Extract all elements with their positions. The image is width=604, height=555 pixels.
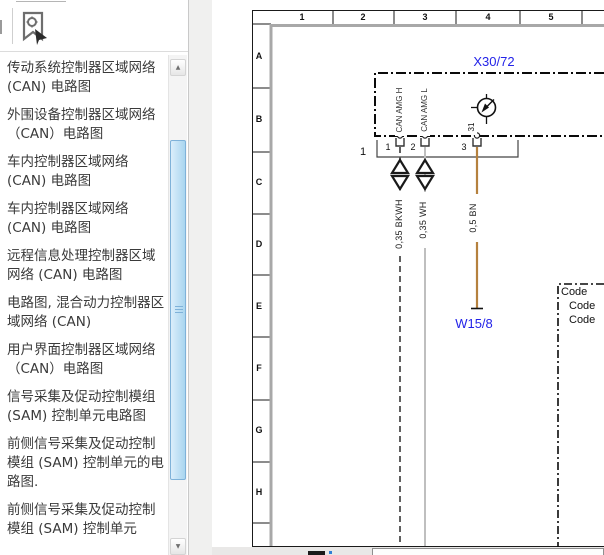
grid-column-label: 1	[292, 12, 312, 22]
ground-point-label: W15/8	[446, 316, 502, 331]
wire-gauge-label-bn: 0,5 BN	[468, 195, 478, 241]
scrollbar-grip-icon	[175, 306, 183, 313]
sidebar-scrollbar[interactable]: ▲ ▼	[168, 55, 187, 555]
pin-number: 1	[383, 142, 393, 152]
sidebar-item-telematics-can[interactable]: 远程信息处理控制器区域网络 (CAN) 电路图	[7, 247, 165, 285]
grid-row-label: G	[251, 425, 267, 435]
scroll-up-button[interactable]: ▲	[170, 59, 186, 76]
grid-column-label: 5	[541, 12, 561, 22]
bookmark-search-button[interactable]	[19, 11, 51, 49]
panel-gutter	[189, 0, 212, 555]
toolbar-edge-fragment	[0, 20, 2, 34]
sidebar-item-sam-unit[interactable]: 信号采集及促动控制模组 (SAM) 控制单元电路图	[7, 388, 165, 426]
taskbar-app-icon[interactable]	[308, 551, 325, 555]
sidebar-item-ui-can[interactable]: 用户界面控制器区域网络（CAN）电路图	[7, 341, 165, 379]
wire-gauge-label-wh: 0,35 WH	[418, 195, 428, 245]
grid-row-label: H	[251, 487, 267, 497]
scroll-down-button[interactable]: ▼	[170, 538, 186, 555]
scrollbar-thumb[interactable]	[170, 140, 186, 480]
plug-number-label: 1	[360, 146, 366, 158]
signal-label-can-amg-h: CAN AMG H	[395, 84, 405, 136]
schematic-drawing	[212, 0, 604, 555]
grid-column-label: 4	[478, 12, 498, 22]
code-box-line: Code	[569, 300, 595, 312]
sidebar-item-interior-can-2[interactable]: 车内控制器区域网络 (CAN) 电路图	[7, 200, 165, 238]
sidebar-item-powertrain-can[interactable]: 传动系统控制器区域网络 (CAN) 电路图	[7, 59, 165, 97]
grid-column-label: 2	[353, 12, 373, 22]
diagram-viewport[interactable]: 1 2 3 4 5 A B C D E F G H X30/72 CAN AMG…	[212, 0, 604, 555]
pin3-circuit-label: 31	[467, 119, 477, 135]
sidebar-item-front-sam-1[interactable]: 前侧信号采集及促动控制模组 (SAM) 控制单元的电路图.	[7, 435, 165, 492]
connector-id-label: X30/72	[454, 54, 534, 69]
grid-row-label: B	[251, 114, 267, 124]
taskbar-accent-dot	[329, 551, 332, 554]
sidebar-item-peripheral-can[interactable]: 外围设备控制器区域网络（CAN）电路图	[7, 106, 165, 144]
code-box-line: Code	[569, 314, 595, 326]
bookmark-zoom-icon	[20, 11, 50, 47]
bottom-window-edge[interactable]	[372, 548, 604, 555]
diagram-list: 传动系统控制器区域网络 (CAN) 电路图 外围设备控制器区域网络（CAN）电路…	[0, 55, 168, 555]
toolbar-bottom-divider	[0, 51, 188, 52]
pin-number: 2	[408, 142, 418, 152]
sidebar-item-hybrid-can[interactable]: 电路图, 混合动力控制器区域网络 (CAN)	[7, 294, 165, 332]
toolbar-vertical-divider	[12, 8, 13, 44]
sidebar-item-front-sam-2[interactable]: 前侧信号采集及促动控制模组 (SAM) 控制单元	[7, 501, 165, 539]
wire-gauge-label-bkwh: 0,35 BKWH	[394, 192, 404, 256]
signal-label-can-amg-l: CAN AMG L	[420, 84, 430, 136]
sidebar-item-interior-can-1[interactable]: 车内控制器区域网络 (CAN) 电路图	[7, 153, 165, 191]
grid-column-label: 3	[415, 12, 435, 22]
grid-row-label: C	[251, 177, 267, 187]
grid-row-label: A	[251, 51, 267, 61]
grid-row-label: D	[251, 239, 267, 249]
sidebar-panel: 传动系统控制器区域网络 (CAN) 电路图 外围设备控制器区域网络（CAN）电路…	[0, 0, 189, 555]
pin-number: 3	[459, 142, 469, 152]
twisted-pair-symbol	[392, 160, 433, 189]
grid-row-label: F	[251, 363, 267, 373]
grid-row-label: E	[251, 301, 267, 311]
code-box-line: Code	[561, 286, 587, 298]
toolbar-top-divider	[16, 1, 66, 2]
app-window: 传动系统控制器区域网络 (CAN) 电路图 外围设备控制器区域网络（CAN）电路…	[0, 0, 604, 555]
plug-bracket	[377, 140, 518, 157]
